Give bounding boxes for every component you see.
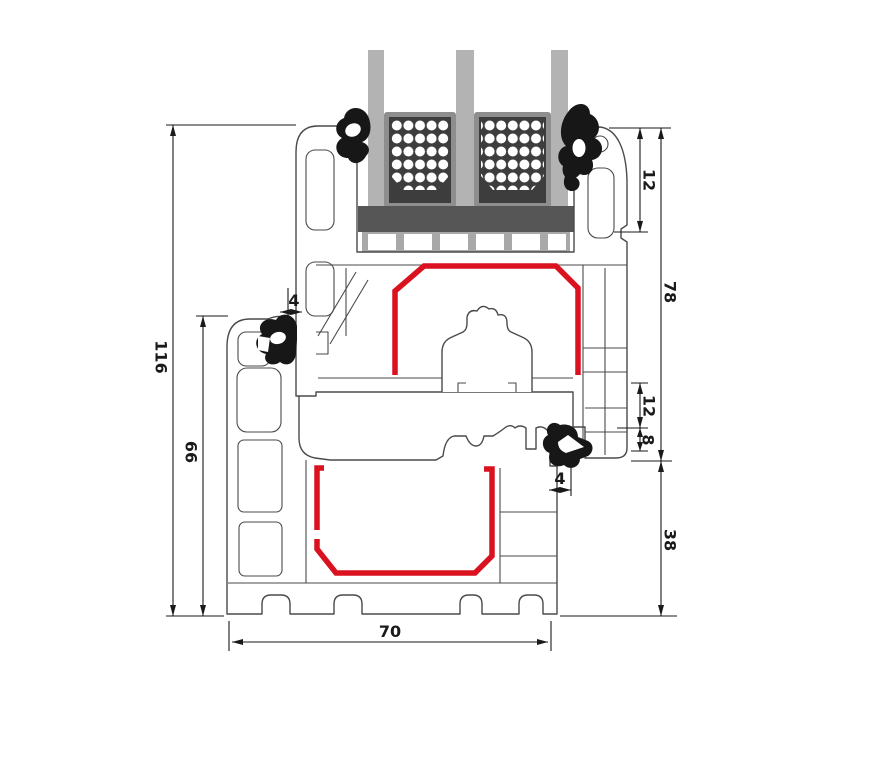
spacer-bar-desiccant [384, 112, 456, 208]
dimension-12-mid: 12 [637, 383, 659, 428]
dimension-70: 70 [232, 622, 548, 645]
glass-pane [456, 50, 474, 208]
dim-label-66: 66 [182, 441, 201, 463]
dimension-4-left: 4 [280, 291, 302, 315]
dimension-78: 78 [658, 128, 680, 461]
profile-section-drawing: 116 66 70 12 78 [0, 0, 877, 766]
glazing-block-bridge [358, 206, 574, 232]
dim-label-4-left: 4 [288, 291, 299, 310]
dimension-8: 8 [637, 428, 658, 451]
dim-label-78: 78 [661, 281, 680, 303]
glazing-gasket-inner [336, 108, 370, 163]
dim-label-38: 38 [661, 529, 680, 551]
glazing-packer-slotted [362, 232, 570, 252]
dim-label-8: 8 [639, 434, 658, 445]
dim-label-12-top: 12 [640, 169, 659, 191]
technical-drawing-canvas: 116 66 70 12 78 [0, 0, 877, 766]
dimension-38: 38 [658, 461, 680, 616]
dim-label-70: 70 [379, 622, 401, 641]
dim-label-116: 116 [152, 340, 171, 373]
dimension-66: 66 [182, 316, 207, 616]
dim-label-12-mid: 12 [640, 395, 659, 417]
dimension-12-top: 12 [637, 128, 659, 232]
dimension-116: 116 [152, 125, 177, 616]
dim-label-4-right: 4 [554, 469, 565, 488]
triple-glazing-unit [358, 50, 574, 252]
spacer-bar-desiccant [474, 112, 551, 208]
